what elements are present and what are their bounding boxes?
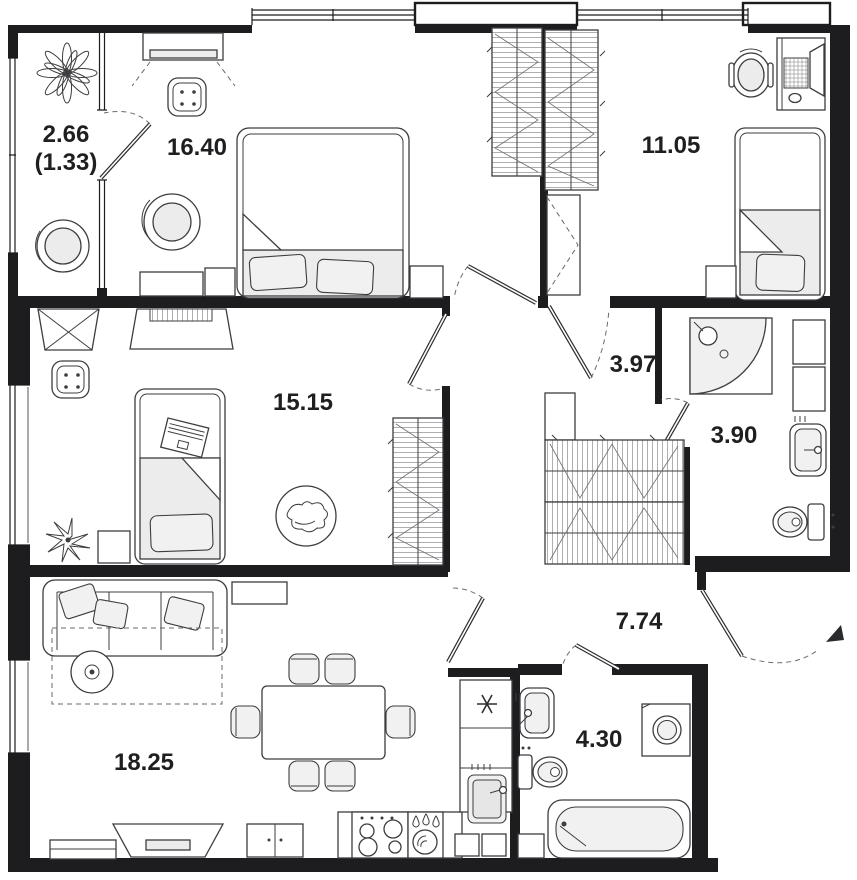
nightstand-icon: [706, 266, 736, 298]
area-kids: 15.15: [273, 389, 333, 416]
area-balcony-coef: (1.33): [35, 149, 98, 176]
window-balcony-divider: [97, 33, 107, 288]
room-bedroom: [132, 28, 542, 298]
area-living: 18.25: [114, 749, 174, 776]
window-bedroom: [252, 8, 415, 25]
pet-rug-icon: [276, 486, 336, 546]
floor-plan: 2.66 (1.33) 16.40 11.05 3.97 3.90 15.15 …: [0, 0, 857, 880]
window-living: [8, 660, 30, 753]
area-bath: 4.30: [576, 726, 623, 753]
media-shelf-icon: [50, 840, 116, 859]
cabinet-icon: [518, 834, 544, 858]
plant-icon: [46, 518, 90, 562]
wash-basin-icon: [790, 416, 826, 476]
window-balcony: [8, 58, 18, 253]
cabinet-icon: [247, 824, 303, 857]
pouf-icon: [52, 361, 89, 398]
lounge-chair-icon: [38, 309, 99, 350]
double-bed-icon: [237, 128, 409, 298]
room-living: [43, 580, 512, 859]
room-hall-top: [545, 393, 684, 564]
shower-icon: [690, 318, 772, 394]
nightstand-icon: [98, 531, 130, 563]
room-bedroom2: [545, 30, 825, 300]
toilet-icon: [518, 747, 567, 790]
area-hall-top: 3.97: [610, 351, 657, 378]
wardrobe-icon: [388, 418, 443, 565]
pouf-icon: [168, 78, 206, 116]
nightstand-icon: [410, 266, 443, 298]
door-entrance: [702, 590, 844, 663]
dining-table-icon: [262, 686, 385, 759]
washing-machine-icon: [642, 704, 690, 756]
plant-icon: [37, 43, 97, 103]
sofa-icon: [43, 580, 227, 656]
single-bed-icon: [735, 128, 825, 300]
office-chair-icon: [729, 49, 773, 97]
door-living: [448, 588, 483, 662]
bathtub-icon: [548, 800, 690, 858]
coffee-table-icon: [71, 651, 113, 693]
cabinet-icon: [547, 195, 580, 295]
dresser-icon: [130, 309, 233, 349]
stove-icon: [352, 812, 408, 858]
window-kids: [8, 385, 30, 545]
wardrobe-icon: [487, 28, 542, 176]
toilet-icon: [773, 504, 835, 540]
door-bedroom2: [549, 306, 609, 378]
door-bath-bottom: [562, 645, 619, 669]
hall-wardrobe-icon: [545, 435, 684, 564]
room-kids: [38, 309, 443, 565]
desk-icon: [777, 38, 825, 110]
area-hall: 7.74: [616, 608, 663, 635]
wash-basin-icon: [516, 688, 554, 738]
door-bedroom: [454, 266, 536, 303]
exterior-pier: [415, 3, 577, 25]
kitchen-cabinet-icon: [455, 834, 506, 856]
single-bed-icon: [135, 389, 225, 564]
area-balcony: 2.66: [43, 121, 90, 148]
dishwasher-icon: [408, 812, 443, 858]
shelf-unit-icon: [793, 320, 825, 411]
door-kids: [409, 314, 446, 390]
armchair-icon: [142, 194, 200, 250]
armchair-icon: [36, 220, 89, 272]
room-bath: [516, 688, 690, 858]
area-bedroom: 16.40: [167, 134, 227, 161]
area-bedroom2: 11.05: [642, 132, 701, 159]
area-bath-top: 3.90: [711, 422, 758, 449]
side-table-icon: [232, 582, 287, 604]
window-bedroom2: [577, 8, 748, 25]
tv-stand-icon: [113, 824, 223, 857]
wardrobe-icon: [545, 30, 605, 190]
door-balcony: [101, 111, 150, 178]
exterior-pier: [743, 3, 830, 25]
nightstand-icon: [205, 268, 235, 296]
dresser-icon: [140, 272, 203, 296]
hall-cabinet-icon: [545, 393, 575, 440]
entrance-arrow-icon: [826, 625, 844, 642]
